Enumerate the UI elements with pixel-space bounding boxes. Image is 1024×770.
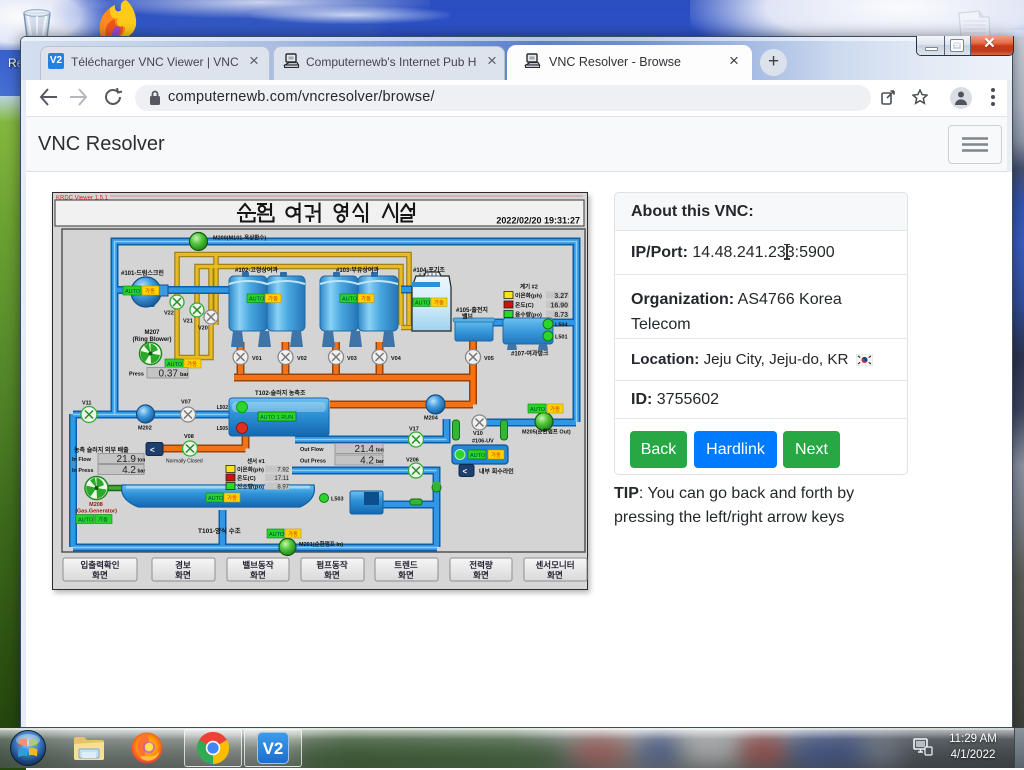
svg-text:8.73: 8.73 bbox=[554, 312, 568, 319]
svg-text:펌프동작: 펌프동작 bbox=[316, 560, 347, 570]
svg-text:화면: 화면 bbox=[547, 570, 563, 580]
svg-text:<: < bbox=[150, 446, 155, 455]
svg-text:L503: L503 bbox=[331, 497, 344, 503]
svg-text:In Press: In Press bbox=[72, 468, 93, 474]
svg-text:21.9: 21.9 bbox=[117, 454, 137, 465]
svg-text:Normally Closed: Normally Closed bbox=[166, 459, 203, 465]
svg-text:21.4: 21.4 bbox=[355, 444, 375, 455]
svg-text:L502: L502 bbox=[217, 405, 229, 411]
svg-text:M207: M207 bbox=[144, 330, 160, 336]
svg-text:센서 #1: 센서 #1 bbox=[247, 457, 265, 465]
svg-text:화면: 화면 bbox=[398, 570, 414, 580]
svg-text:M208: M208 bbox=[89, 502, 103, 508]
svg-text:L504: L504 bbox=[555, 323, 568, 329]
svg-text:8.97: 8.97 bbox=[277, 485, 289, 491]
svg-text:온도(C): 온도(C) bbox=[237, 474, 256, 482]
svg-text:이온화(ph): 이온화(ph) bbox=[237, 466, 264, 474]
svg-text:온도(C): 온도(C) bbox=[515, 301, 534, 309]
svg-text:M204: M204 bbox=[424, 416, 439, 422]
svg-text:밸브: 밸브 bbox=[462, 313, 474, 321]
svg-text:V22: V22 bbox=[164, 311, 174, 317]
svg-text:가동: 가동 bbox=[434, 299, 444, 307]
svg-text:가동: 가동 bbox=[550, 405, 560, 413]
svg-text:2022/02/20 19:31:27: 2022/02/20 19:31:27 bbox=[496, 216, 580, 226]
svg-text:산소량(po): 산소량(po) bbox=[237, 483, 264, 491]
svg-text:V04: V04 bbox=[391, 356, 402, 362]
svg-text:V17: V17 bbox=[409, 427, 419, 433]
svg-text:V11: V11 bbox=[82, 401, 91, 407]
svg-text:V02: V02 bbox=[297, 356, 307, 362]
svg-text:경보: 경보 bbox=[175, 560, 191, 570]
svg-text:#104-포기조: #104-포기조 bbox=[413, 266, 445, 274]
svg-text:AUTO: AUTO bbox=[415, 301, 431, 307]
svg-text:전력량: 전력량 bbox=[469, 560, 493, 570]
svg-text:화면: 화면 bbox=[250, 570, 266, 580]
svg-text:가동: 가동 bbox=[361, 295, 371, 303]
svg-text:가동: 가동 bbox=[288, 530, 298, 538]
svg-text:V05: V05 bbox=[484, 356, 494, 362]
svg-text:#103-부유상여과: #103-부유상여과 bbox=[336, 266, 379, 274]
svg-text:농축 슬러지 외부 배출: 농축 슬러지 외부 배출 bbox=[74, 446, 129, 454]
svg-text:T102-슬러지 농축조: T102-슬러지 농축조 bbox=[255, 389, 306, 397]
svg-text:ton: ton bbox=[376, 448, 384, 454]
svg-text:트렌드: 트렌드 bbox=[394, 560, 418, 570]
svg-text:화면: 화면 bbox=[473, 570, 489, 580]
svg-text:#102-고정상여과: #102-고정상여과 bbox=[235, 266, 278, 274]
svg-text:17.11: 17.11 bbox=[274, 476, 289, 482]
svg-text:AUTO: AUTO bbox=[269, 532, 285, 538]
svg-text:AUTO: AUTO bbox=[249, 297, 265, 303]
svg-text:Out Flow: Out Flow bbox=[300, 447, 324, 453]
svg-text:4.2: 4.2 bbox=[360, 456, 374, 467]
svg-text:가동: 가동 bbox=[145, 287, 155, 295]
svg-text:M205(순환펌프 Out): M205(순환펌프 Out) bbox=[522, 428, 571, 436]
svg-text:M200(M101-옥상환수): M200(M101-옥상환수) bbox=[213, 234, 266, 242]
svg-text:계기 #2: 계기 #2 bbox=[520, 283, 538, 291]
svg-text:L505: L505 bbox=[217, 426, 229, 432]
svg-text:(Gas.Generator): (Gas.Generator) bbox=[75, 509, 117, 515]
svg-text:bar: bar bbox=[376, 459, 384, 465]
svg-text:V03: V03 bbox=[347, 356, 357, 362]
svg-text:용수량(po): 용수량(po) bbox=[515, 311, 542, 319]
svg-text:#106-UV: #106-UV bbox=[472, 439, 494, 445]
svg-text:센서모니터: 센서모니터 bbox=[535, 560, 574, 570]
svg-text:V07: V07 bbox=[181, 400, 191, 406]
svg-text:T101-양식 수조: T101-양식 수조 bbox=[198, 526, 241, 535]
svg-text:밸브동작: 밸브동작 bbox=[242, 560, 273, 570]
svg-text:Out Press: Out Press bbox=[300, 459, 326, 465]
svg-text:V20: V20 bbox=[198, 326, 208, 332]
svg-text:bar: bar bbox=[138, 469, 146, 475]
svg-text:AUTO 1 RUN: AUTO 1 RUN bbox=[260, 415, 293, 421]
svg-text:AUTO: AUTO bbox=[208, 496, 224, 502]
svg-text:가동: 가동 bbox=[491, 451, 501, 459]
svg-text:화면: 화면 bbox=[92, 570, 108, 580]
svg-text:bar: bar bbox=[180, 372, 189, 378]
svg-text:AUTO: AUTO bbox=[125, 289, 141, 295]
svg-text:L501: L501 bbox=[555, 335, 568, 341]
svg-text:화면: 화면 bbox=[175, 570, 191, 580]
svg-text:Press: Press bbox=[129, 372, 144, 378]
svg-text:ton: ton bbox=[138, 458, 146, 464]
svg-text:V10: V10 bbox=[473, 431, 483, 437]
svg-text:AUTO: AUTO bbox=[342, 297, 358, 303]
svg-text:내부 회수라인: 내부 회수라인 bbox=[479, 468, 514, 476]
svg-text:7.92: 7.92 bbox=[277, 468, 289, 474]
svg-text:#101-드럼스크린: #101-드럼스크린 bbox=[121, 269, 164, 277]
svg-text:4.2: 4.2 bbox=[122, 465, 136, 476]
svg-text:가동: 가동 bbox=[227, 494, 237, 502]
svg-text:가동: 가동 bbox=[268, 295, 278, 303]
svg-text:V206: V206 bbox=[406, 458, 419, 464]
svg-text:V21: V21 bbox=[183, 319, 193, 325]
svg-text:<: < bbox=[463, 467, 468, 476]
svg-text:AUTO: AUTO bbox=[78, 518, 94, 524]
svg-text:가동: 가동 bbox=[98, 516, 108, 524]
svg-text:16.90: 16.90 bbox=[550, 303, 568, 310]
svg-text:V01: V01 bbox=[252, 356, 262, 362]
svg-text:화면: 화면 bbox=[324, 570, 340, 580]
svg-text:M201(순환펌프 In): M201(순환펌프 In) bbox=[299, 540, 343, 548]
svg-text:#105-출전지: #105-출전지 bbox=[456, 306, 488, 314]
svg-text:AUTO: AUTO bbox=[470, 453, 486, 459]
svg-text:V08: V08 bbox=[184, 434, 194, 440]
svg-text:AUTO: AUTO bbox=[530, 407, 546, 413]
svg-text:0.37: 0.37 bbox=[159, 369, 179, 380]
svg-text:입출력확인: 입출력확인 bbox=[80, 560, 119, 570]
svg-text:In Flow: In Flow bbox=[72, 457, 92, 463]
svg-text:가동: 가동 bbox=[187, 360, 197, 368]
svg-text:M202: M202 bbox=[138, 426, 152, 432]
svg-text:이온화(ph): 이온화(ph) bbox=[515, 292, 542, 300]
svg-text:#107-여과탱크: #107-여과탱크 bbox=[511, 350, 549, 358]
svg-text:3.27: 3.27 bbox=[554, 293, 568, 300]
svg-text:(Ring Blower): (Ring Blower) bbox=[133, 337, 172, 343]
